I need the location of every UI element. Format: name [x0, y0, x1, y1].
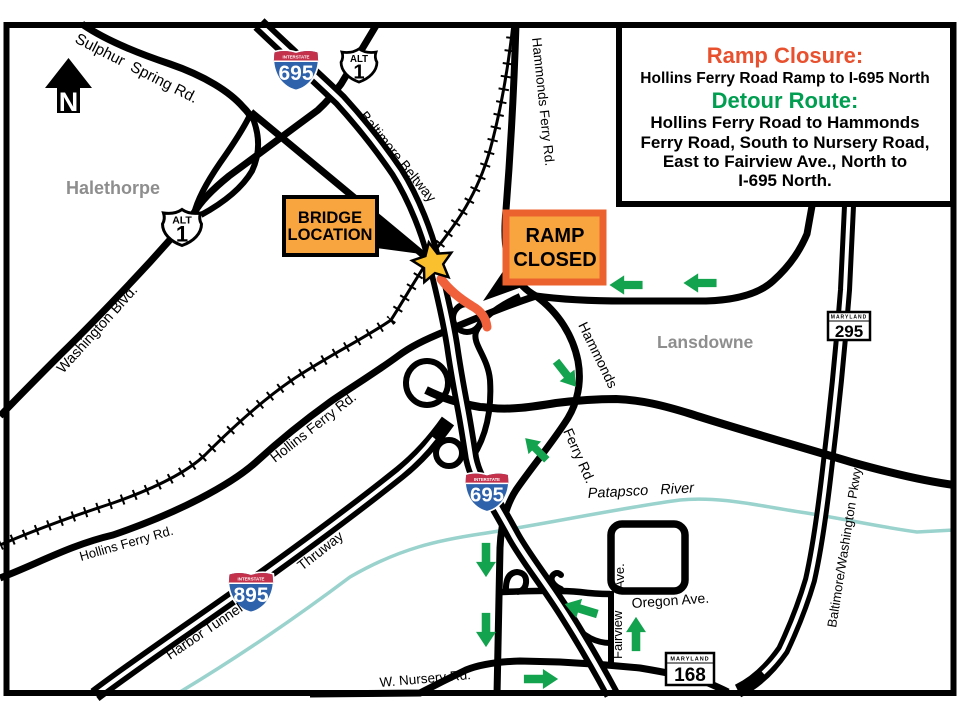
- svg-text:295: 295: [835, 322, 863, 341]
- svg-text:Hollins Ferry Road Ramp to I-6: Hollins Ferry Road Ramp to I-695 North: [640, 70, 929, 87]
- svg-text:INTERSTATE: INTERSTATE: [238, 577, 265, 582]
- svg-text:Hollins Ferry Road to Hammonds: Hollins Ferry Road to Hammonds: [650, 113, 919, 132]
- svg-text:Ave.: Ave.: [612, 563, 627, 589]
- svg-text:Fairview: Fairview: [610, 610, 625, 659]
- svg-text:CLOSED: CLOSED: [513, 249, 596, 271]
- svg-text:Halethorpe: Halethorpe: [66, 178, 160, 198]
- svg-text:N: N: [59, 87, 79, 117]
- svg-text:INTERSTATE: INTERSTATE: [474, 477, 500, 482]
- svg-text:MARYLAND: MARYLAND: [831, 315, 867, 321]
- svg-text:LOCATION: LOCATION: [288, 226, 373, 244]
- svg-text:1: 1: [353, 61, 364, 83]
- svg-text:RAMP: RAMP: [526, 225, 585, 247]
- svg-text:East to Fairview Ave., North t: East to Fairview Ave., North to: [663, 152, 907, 171]
- svg-text:Lansdowne: Lansdowne: [657, 332, 754, 352]
- svg-text:1: 1: [176, 222, 188, 247]
- svg-text:168: 168: [674, 665, 706, 686]
- svg-text:Ramp Closure:: Ramp Closure:: [707, 43, 863, 68]
- svg-text:BRIDGE: BRIDGE: [298, 209, 362, 227]
- svg-text:695: 695: [470, 485, 504, 507]
- svg-text:INTERSTATE: INTERSTATE: [283, 55, 310, 60]
- svg-text:695: 695: [278, 62, 313, 85]
- svg-text:MARYLAND: MARYLAND: [670, 657, 709, 663]
- svg-text:Ferry Road, South to Nursery R: Ferry Road, South to Nursery Road,: [640, 133, 929, 152]
- svg-text:I-695 North.: I-695 North.: [738, 171, 832, 190]
- svg-text:Detour Route:: Detour Route:: [712, 88, 859, 113]
